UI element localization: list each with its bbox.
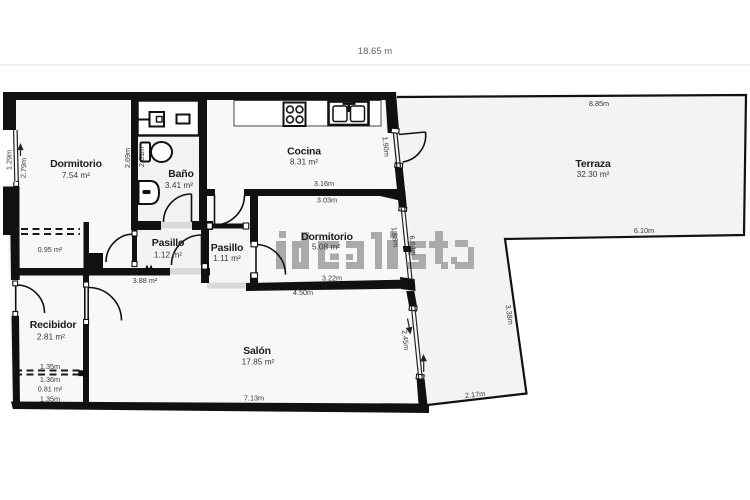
svg-text:3.41 m²: 3.41 m² bbox=[165, 180, 193, 190]
svg-text:6.10m: 6.10m bbox=[634, 226, 654, 235]
svg-text:1.35m: 1.35m bbox=[40, 362, 60, 371]
svg-text:7.54 m²: 7.54 m² bbox=[62, 170, 90, 180]
svg-text:2.61m: 2.61m bbox=[137, 147, 146, 167]
svg-text:3.88 m²: 3.88 m² bbox=[133, 276, 158, 285]
svg-text:5.08 m²: 5.08 m² bbox=[312, 242, 340, 252]
svg-text:Dormitorio: Dormitorio bbox=[50, 158, 102, 170]
svg-text:Recibidor: Recibidor bbox=[30, 319, 77, 331]
svg-text:7.13m: 7.13m bbox=[244, 394, 264, 403]
svg-text:2.81 m²: 2.81 m² bbox=[37, 332, 65, 342]
svg-text:1.29m: 1.29m bbox=[5, 150, 14, 170]
svg-text:0.81 m²: 0.81 m² bbox=[38, 385, 63, 394]
svg-text:3.16m: 3.16m bbox=[314, 179, 334, 188]
svg-text:17.85 m²: 17.85 m² bbox=[242, 357, 275, 367]
svg-text:1.36m: 1.36m bbox=[40, 375, 60, 384]
svg-text:Baño: Baño bbox=[168, 168, 193, 180]
svg-text:0.95 m²: 0.95 m² bbox=[38, 245, 63, 254]
svg-text:4.50m: 4.50m bbox=[293, 288, 313, 297]
svg-text:1.11 m²: 1.11 m² bbox=[213, 253, 241, 263]
svg-text:2.79m: 2.79m bbox=[19, 158, 29, 179]
svg-text:Salón: Salón bbox=[243, 345, 271, 357]
svg-text:3.22m: 3.22m bbox=[322, 274, 342, 283]
svg-text:1.35m: 1.35m bbox=[40, 395, 60, 404]
svg-text:1.12 m²: 1.12 m² bbox=[154, 250, 182, 260]
svg-text:18.65 m: 18.65 m bbox=[358, 46, 392, 57]
svg-text:8.31 m²: 8.31 m² bbox=[290, 157, 318, 167]
svg-text:Pasillo: Pasillo bbox=[152, 237, 184, 249]
svg-text:2.69m: 2.69m bbox=[123, 148, 132, 168]
svg-text:3.03m: 3.03m bbox=[317, 196, 337, 205]
svg-text:32.30 m²: 32.30 m² bbox=[577, 169, 610, 179]
svg-text:8.85m: 8.85m bbox=[589, 99, 609, 108]
